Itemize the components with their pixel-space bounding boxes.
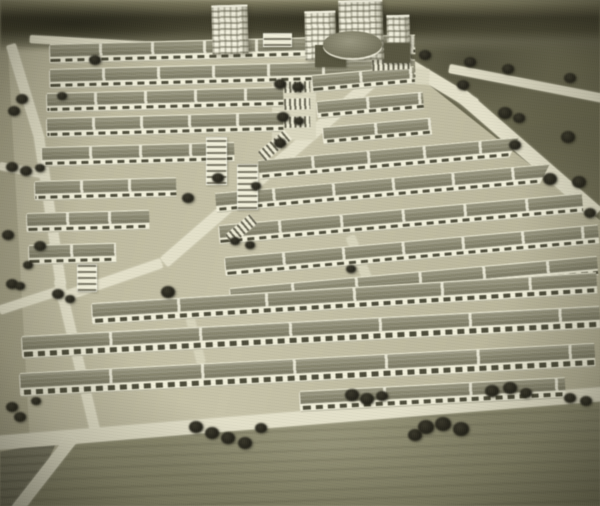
model-tree [57, 92, 67, 101]
model-tree [2, 230, 14, 240]
scene [0, 0, 600, 506]
model-tree [503, 382, 517, 394]
model-tree [274, 138, 286, 148]
model-tree [584, 208, 596, 218]
model-tree [435, 417, 451, 431]
model-tree [294, 117, 304, 126]
model-tree [251, 182, 261, 191]
model-tree [34, 241, 46, 251]
model-tree [20, 166, 32, 176]
model-tree [182, 193, 194, 203]
model-tree [376, 391, 388, 401]
model-tree [561, 131, 575, 143]
model-tree [6, 402, 18, 412]
model-tree [52, 289, 64, 299]
model-tree [65, 295, 75, 304]
model-tree [6, 162, 18, 172]
model-tree [485, 385, 499, 397]
model-tree [277, 112, 289, 122]
model-tree [345, 389, 359, 401]
model-tree [564, 393, 576, 403]
model-tree [189, 421, 203, 433]
model-tree [31, 397, 41, 406]
model-tree [572, 176, 586, 188]
model-tree [15, 282, 25, 291]
model-tree [543, 173, 557, 185]
model-tree [520, 388, 532, 398]
model-tree [245, 241, 255, 250]
model-tree [205, 427, 219, 439]
model-tree [498, 107, 512, 119]
model-tree [292, 82, 304, 92]
model-tree [346, 265, 356, 274]
model-tree [464, 57, 476, 67]
model-tree [419, 50, 431, 60]
model-tree [89, 55, 101, 65]
model-tree [255, 423, 267, 433]
model-tree [230, 237, 240, 246]
model-photograph [0, 0, 600, 506]
model-tree [14, 412, 26, 422]
model-tree [212, 173, 224, 183]
model-tree [8, 106, 20, 116]
model-tree [418, 420, 434, 434]
trees-layer [0, 0, 600, 506]
model-tree [509, 140, 521, 150]
model-tree [513, 113, 525, 123]
model-tree [453, 422, 469, 436]
model-tree [457, 80, 469, 90]
model-tree [502, 64, 514, 74]
model-tree [16, 94, 28, 104]
model-tree [564, 73, 576, 83]
model-tree [274, 79, 286, 89]
model-tree [238, 437, 252, 449]
model-tree [360, 393, 374, 405]
model-tree [221, 432, 235, 444]
model-tree [35, 164, 45, 173]
model-tree [161, 286, 175, 298]
model-tree [23, 261, 33, 270]
model-tree [580, 396, 592, 406]
